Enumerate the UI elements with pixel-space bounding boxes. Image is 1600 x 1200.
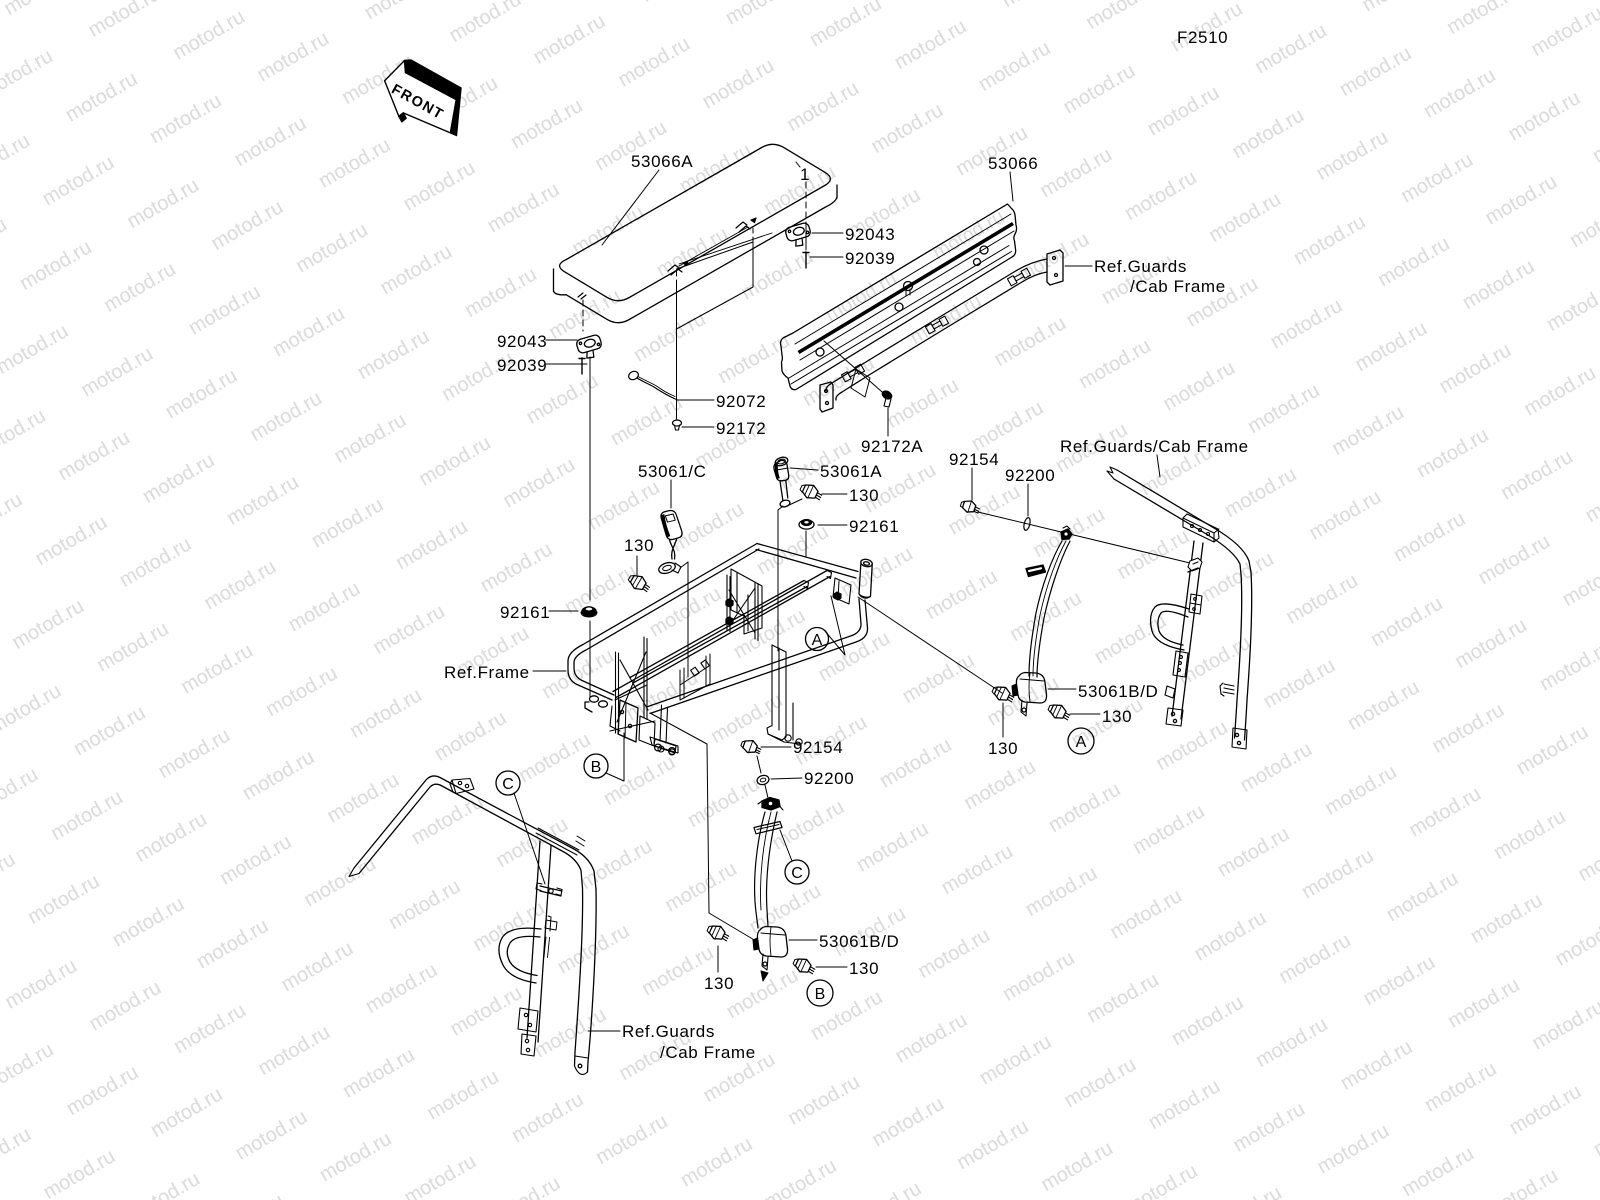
svg-text:92172A: 92172A (861, 437, 923, 456)
svg-text:92039: 92039 (845, 249, 895, 268)
svg-text:C: C (502, 776, 514, 793)
svg-text:92161: 92161 (500, 603, 550, 622)
svg-text:Ref.Guards: Ref.Guards (1094, 257, 1187, 276)
svg-text:A: A (1076, 734, 1087, 751)
svg-text:53061/C: 53061/C (638, 462, 706, 481)
svg-text:130: 130 (624, 536, 654, 555)
svg-text:Ref.Guards/Cab Frame: Ref.Guards/Cab Frame (1060, 437, 1249, 456)
svg-text:53066A: 53066A (631, 152, 693, 171)
svg-text:130: 130 (1102, 707, 1132, 726)
svg-text:Ref.Frame: Ref.Frame (444, 663, 530, 682)
svg-text:92154: 92154 (793, 738, 843, 757)
svg-text:C: C (791, 865, 803, 882)
svg-text:92200: 92200 (804, 769, 854, 788)
svg-text:1: 1 (800, 165, 810, 184)
svg-text:130: 130 (988, 739, 1018, 758)
svg-text:130: 130 (849, 486, 879, 505)
svg-text:92172: 92172 (716, 419, 766, 438)
svg-text:/Cab Frame: /Cab Frame (660, 1043, 756, 1062)
svg-text:92200: 92200 (1005, 466, 1055, 485)
svg-text:92154: 92154 (949, 450, 999, 469)
svg-text:Ref.Guards: Ref.Guards (622, 1022, 715, 1041)
svg-text:53066: 53066 (988, 154, 1038, 173)
svg-text:F2510: F2510 (1177, 28, 1228, 47)
svg-text:53061B/D: 53061B/D (1078, 682, 1158, 701)
svg-text:130: 130 (849, 959, 879, 978)
svg-text:/Cab Frame: /Cab Frame (1130, 277, 1226, 296)
svg-text:130: 130 (704, 974, 734, 993)
svg-text:92043: 92043 (497, 332, 547, 351)
svg-text:92043: 92043 (845, 225, 895, 244)
svg-text:53061B/D: 53061B/D (819, 932, 899, 951)
svg-text:92039: 92039 (497, 356, 547, 375)
svg-text:92161: 92161 (849, 517, 899, 536)
svg-text:92072: 92072 (716, 392, 766, 411)
svg-text:53061A: 53061A (820, 462, 882, 481)
svg-text:A: A (812, 632, 823, 649)
svg-text:B: B (591, 759, 602, 776)
svg-text:B: B (815, 986, 826, 1003)
